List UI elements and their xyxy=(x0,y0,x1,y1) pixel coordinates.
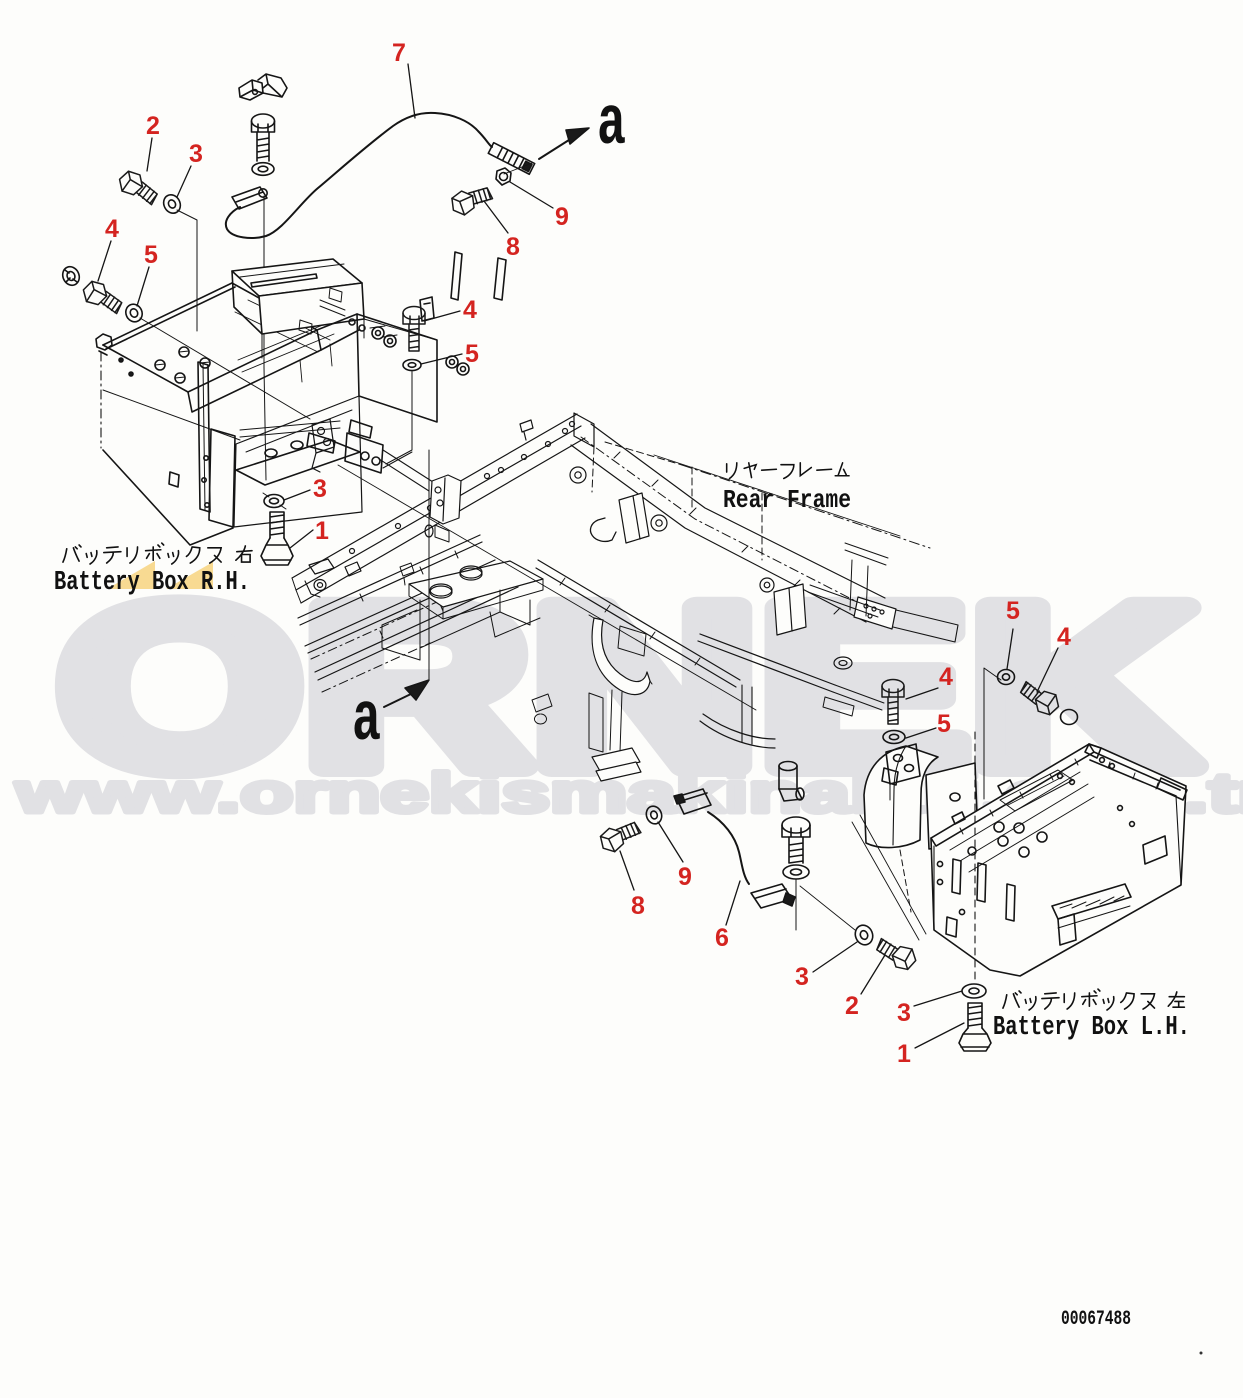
svg-text:6: 6 xyxy=(715,924,729,952)
svg-text:5: 5 xyxy=(937,710,951,738)
svg-text:1: 1 xyxy=(897,1040,911,1068)
svg-text:4: 4 xyxy=(463,296,477,324)
svg-text:4: 4 xyxy=(939,663,953,691)
svg-text:2: 2 xyxy=(146,112,160,140)
svg-text:4: 4 xyxy=(105,215,119,243)
svg-text:00067488: 00067488 xyxy=(1061,1308,1131,1331)
svg-text:9: 9 xyxy=(555,203,569,231)
svg-text:8: 8 xyxy=(631,892,645,920)
svg-text:Battery Box L.H.: Battery Box L.H. xyxy=(993,1013,1190,1043)
svg-text:1: 1 xyxy=(315,517,329,545)
svg-text:5: 5 xyxy=(1006,597,1020,625)
svg-text:Rear Frame: Rear Frame xyxy=(723,486,851,516)
svg-text:3: 3 xyxy=(897,999,911,1027)
svg-text:5: 5 xyxy=(144,241,158,269)
svg-text:3: 3 xyxy=(795,963,809,991)
svg-text:8: 8 xyxy=(506,233,520,261)
svg-text:a: a xyxy=(352,681,381,760)
svg-text:9: 9 xyxy=(678,863,692,891)
svg-text:3: 3 xyxy=(313,475,327,503)
svg-text:4: 4 xyxy=(1057,623,1071,651)
svg-text:7: 7 xyxy=(392,39,406,67)
svg-text:5: 5 xyxy=(465,340,479,368)
svg-text:3: 3 xyxy=(189,140,203,168)
svg-text:Battery Box R.H.: Battery Box R.H. xyxy=(54,568,250,598)
svg-text:2: 2 xyxy=(845,992,859,1020)
svg-text:a: a xyxy=(597,85,626,164)
